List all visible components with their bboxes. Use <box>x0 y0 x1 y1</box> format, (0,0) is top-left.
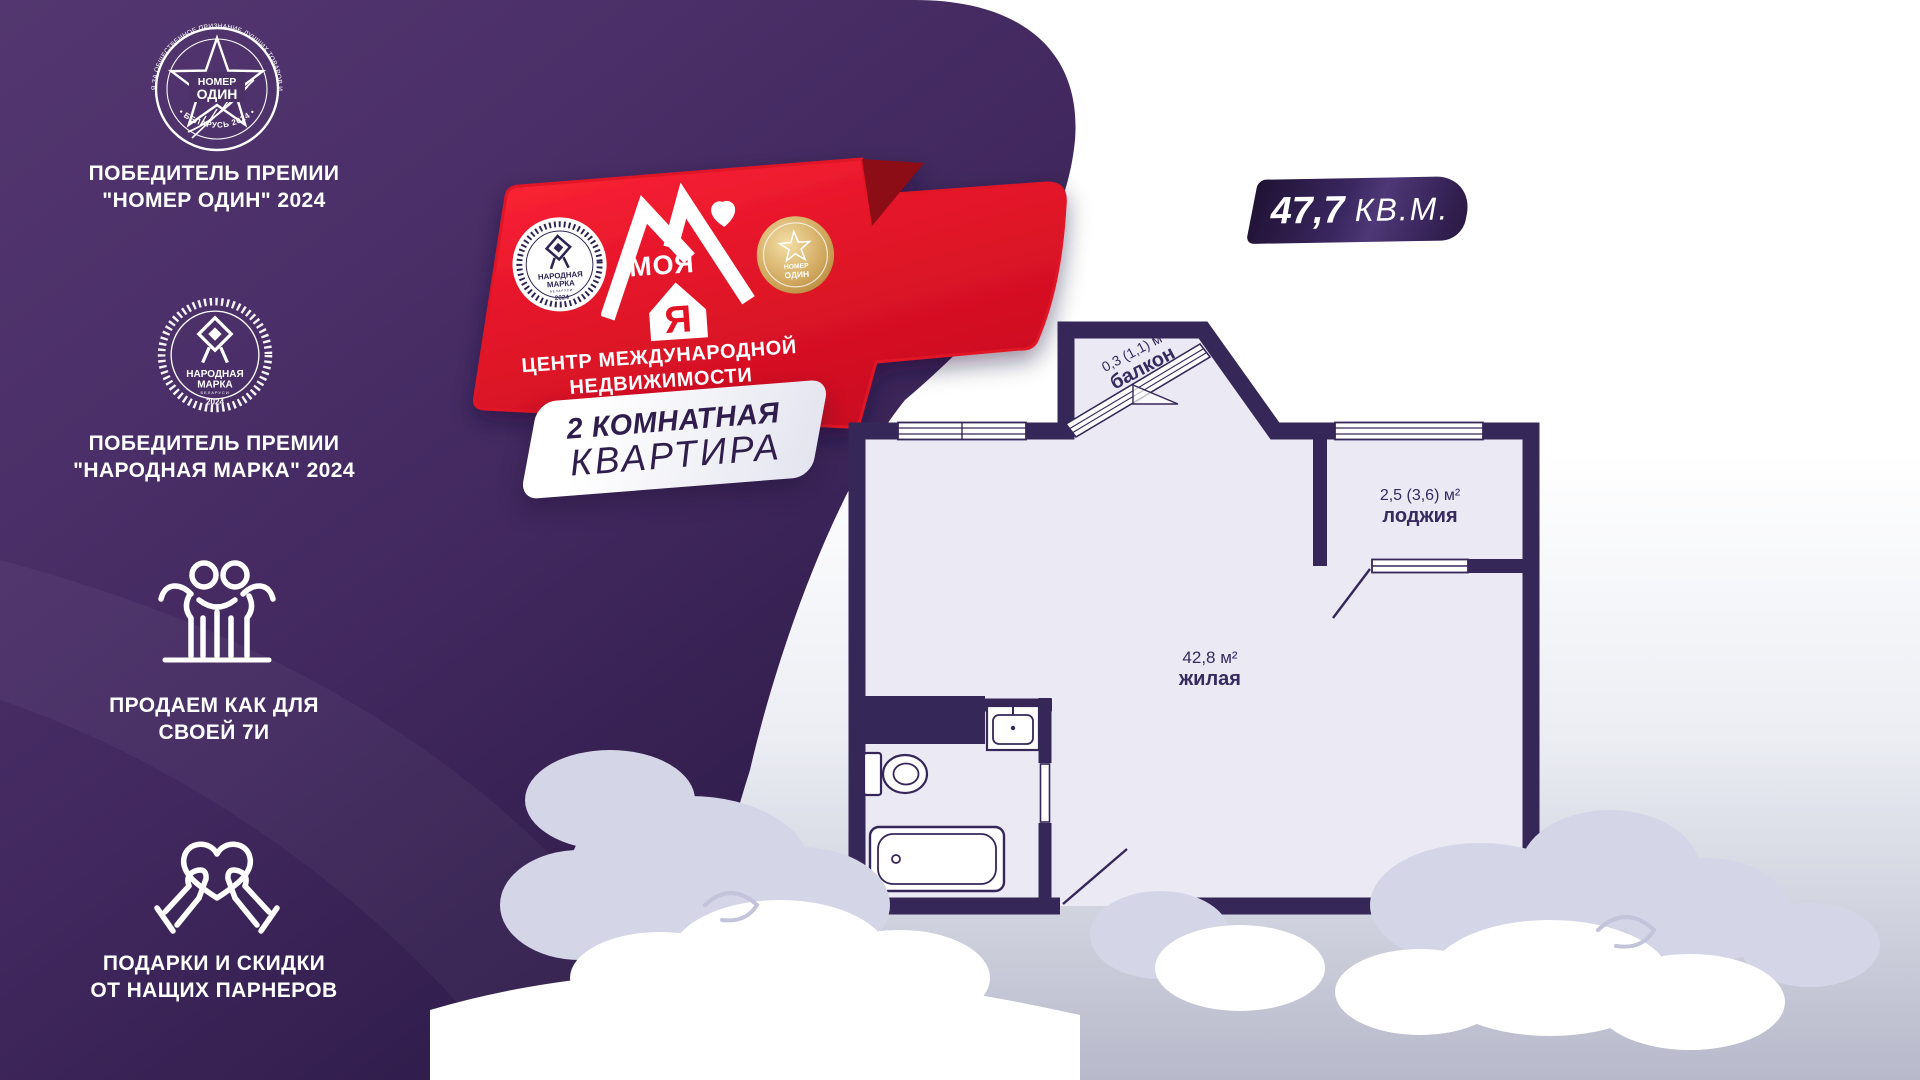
flyer-canvas: НОМЕР ОДИН ПРЕМИЯ ЗА ОБЩЕСТВЕННОЕ ПРИЗНА… <box>0 0 1920 1080</box>
award1-caption-line1: ПОБЕДИТЕЛЬ ПРЕМИИ <box>34 160 394 187</box>
stamp2-name1: НАРОДНАЯ <box>186 369 243 380</box>
family-caption-line1: ПРОДАЕМ КАК ДЛЯ <box>34 692 394 719</box>
award-caption-narodnaya-marka: ПОБЕДИТЕЛЬ ПРЕМИИ "НАРОДНАЯ МАРКА" 2024 <box>34 430 394 484</box>
gift-caption: ПОДАРКИ И СКИДКИ ОТ НАЩИХ ПАРНЕРОВ <box>34 950 394 1004</box>
award1-caption-line2: "НОМЕР ОДИН" 2024 <box>34 187 394 214</box>
area-value: 47,7 <box>1270 189 1345 233</box>
gift-caption-line2: ОТ НАЩИХ ПАРНЕРОВ <box>34 977 394 1004</box>
award2-caption-line1: ПОБЕДИТЕЛЬ ПРЕМИИ <box>34 430 394 457</box>
stamp1-arc-bottom: • БЕЛАРУСЬ 2024 • <box>177 107 257 129</box>
heart-icon <box>711 200 737 227</box>
room-label-loggia: 2,5 (3,6) м² лоджия <box>1340 487 1500 528</box>
brand-letter: Я <box>663 298 693 342</box>
sink-icon <box>987 706 1039 750</box>
stamp2-year: 2024 <box>206 398 225 407</box>
family-icon <box>147 556 287 676</box>
family-caption: ПРОДАЕМ КАК ДЛЯ СВОЕЙ 7И <box>34 692 394 746</box>
loggia-top-window <box>1335 423 1483 440</box>
award-caption-number-one: ПОБЕДИТЕЛЬ ПРЕМИИ "НОМЕР ОДИН" 2024 <box>34 160 394 214</box>
room-label-living: 42,8 м² жилая <box>1130 648 1290 690</box>
mini-badge-year: 2024 <box>555 294 570 302</box>
area-badge: 47,7 КВ.М. <box>1246 176 1474 244</box>
gold-badge-line2: ОДИН <box>784 269 809 281</box>
apartment-floor <box>857 330 1531 906</box>
loggia-window <box>1372 560 1468 573</box>
living-name: жилая <box>1130 668 1290 690</box>
brand-word: МОЯ <box>628 248 695 282</box>
stamp2-sub: БЕЛАРУСИ <box>200 390 229 395</box>
award2-caption-line2: "НАРОДНАЯ МАРКА" 2024 <box>34 457 394 484</box>
living-area: 42,8 м² <box>1130 648 1290 668</box>
gift-icon <box>147 828 287 946</box>
area-unit: КВ.М. <box>1354 190 1449 229</box>
svg-text:• БЕЛАРУСЬ 2024 •: • БЕЛАРУСЬ 2024 • <box>177 107 257 129</box>
family-caption-line2: СВОЕЙ 7И <box>34 719 394 746</box>
loggia-area: 2,5 (3,6) м² <box>1340 487 1500 505</box>
stamp2-name2: МАРКА <box>197 379 233 390</box>
award-stamp-narodnaya-marka: НАРОДНАЯ МАРКА БЕЛАРУСИ 2024 <box>153 293 277 417</box>
bathtub-icon <box>870 827 1004 891</box>
award-stamp-number-one: НОМЕР ОДИН ПРЕМИЯ ЗА ОБЩЕСТВЕННОЕ ПРИЗНА… <box>142 14 292 164</box>
bathroom-door <box>1041 764 1050 822</box>
brand-logo: НОМЕР ОДИН МОЯ Я <box>592 172 843 353</box>
toilet-icon <box>864 753 927 795</box>
stamp1-name2: ОДИН <box>197 86 238 102</box>
brand-gold-badge: НОМЕР ОДИН <box>754 214 836 296</box>
gift-caption-line1: ПОДАРКИ И СКИДКИ <box>34 950 394 977</box>
loggia-name: лоджия <box>1340 505 1500 527</box>
